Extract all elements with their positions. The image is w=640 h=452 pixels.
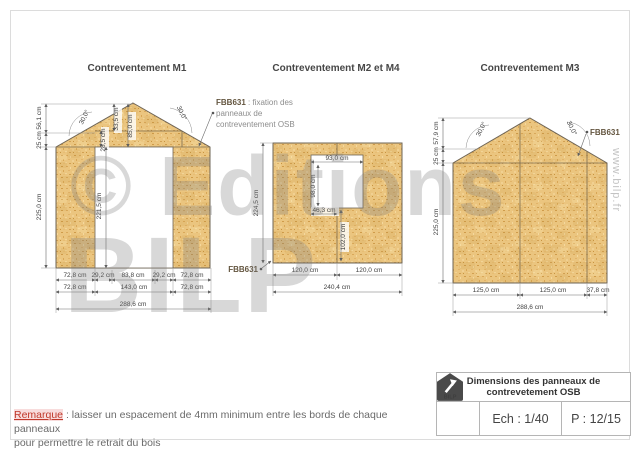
dim-label: 85,0 cm xyxy=(127,114,134,137)
dim-label: 125,0 cm xyxy=(473,287,500,294)
m2-drawing: Contreventement M2 et M4 FBB631 : fixati… xyxy=(199,63,402,296)
page-number-cell: P : 12/15 xyxy=(562,402,630,435)
dim-label: 98,0 cm xyxy=(310,174,317,197)
svg-text:BILP: BILP xyxy=(444,394,457,400)
remark-label: Remarque xyxy=(14,409,63,421)
remark-note: Remarque : laisser un espacement de 4mm … xyxy=(14,408,434,450)
dim-label: 72,8 cm xyxy=(63,272,86,279)
dim-label: 37,8 cm xyxy=(586,287,609,294)
bilp-logo: BILP xyxy=(437,402,480,435)
dim-label: 72,8 cm xyxy=(63,284,86,291)
m3-title: Contreventement M3 xyxy=(481,63,580,74)
dim-label: 125,0 cm xyxy=(540,287,567,294)
svg-text:FBB631 : fixation des: FBB631 : fixation des xyxy=(216,98,293,107)
remark-text-line1: : laisser un espacement de 4mm minimum e… xyxy=(14,409,388,435)
m1-door-opening xyxy=(95,147,173,268)
m3-drawing: Contreventement M3 57,9 cm 25 cm 225,0 c… xyxy=(433,63,620,316)
dim-label: 224,5 cm xyxy=(253,190,260,217)
dim-label: 57,9 cm xyxy=(433,121,440,144)
dim-label: 29,2 cm xyxy=(152,272,175,279)
dim-label: 225,0 cm xyxy=(36,194,43,221)
dim-label: 221,5 cm xyxy=(96,193,103,220)
dim-label: 56,1 cm xyxy=(36,106,43,129)
title-block-line2: contrevetement OSB xyxy=(487,387,581,398)
dim-label: 240,4 cm xyxy=(324,284,351,291)
title-block-row: BILP Ech : 1/40 P : 12/15 xyxy=(437,402,630,435)
title-block: Dimensions des panneaux de contrevetemen… xyxy=(436,372,631,436)
scale-cell: Ech : 1/40 xyxy=(480,402,562,435)
plan-page: Contreventement M1 56,1 cm 25 cm 225,0 c… xyxy=(0,0,640,452)
fbb631-annotation: FBB631 : fixation des panneaux de contre… xyxy=(199,98,295,146)
dim-label: 30,0° xyxy=(77,108,91,126)
remark-text-line2: pour permettre le retrait du bois xyxy=(14,437,161,449)
dim-label: 288,6 cm xyxy=(120,301,147,308)
m2-title: Contreventement M2 et M4 xyxy=(272,63,400,74)
m1-drawing: Contreventement M1 56,1 cm 25 cm 225,0 c… xyxy=(36,63,211,313)
dim-label: 143,0 cm xyxy=(121,284,148,291)
dim-label: 102,0 cm xyxy=(340,224,347,251)
bilp-logo-icon: BILP xyxy=(437,373,463,401)
title-block-line1: Dimensions des panneaux de xyxy=(467,376,601,387)
m1-title: Contreventement M1 xyxy=(88,63,187,74)
dim-label: 33,5 cm xyxy=(113,107,120,130)
dim-label: 30,0° xyxy=(565,120,579,138)
dim-label: 25 cm xyxy=(36,131,43,149)
dim-label: 225,0 cm xyxy=(433,209,440,236)
m2-window-opening xyxy=(311,155,363,208)
dim-label: 72,8 cm xyxy=(180,272,203,279)
title-block-header: Dimensions des panneaux de contrevetemen… xyxy=(437,373,630,402)
dim-label: 120,0 cm xyxy=(292,267,319,274)
dim-label: 46,3 cm xyxy=(312,207,335,214)
fbb631-label: FBB631 xyxy=(590,128,620,137)
dim-label: 29,2 cm xyxy=(91,272,114,279)
dim-label: 72,8 cm xyxy=(180,284,203,291)
dim-label: 30,0° xyxy=(175,105,189,123)
dim-label: 25 cm xyxy=(433,147,440,165)
svg-text:contreventement OSB: contreventement OSB xyxy=(216,120,295,129)
dim-label: 93,0 cm xyxy=(325,155,348,162)
dim-label: 288,6 cm xyxy=(517,304,544,311)
dim-label: 120,0 cm xyxy=(356,267,383,274)
dim-label: 83,8 cm xyxy=(121,272,144,279)
fbb631-label: FBB631 xyxy=(228,265,258,274)
svg-text:panneaux de: panneaux de xyxy=(216,109,263,118)
